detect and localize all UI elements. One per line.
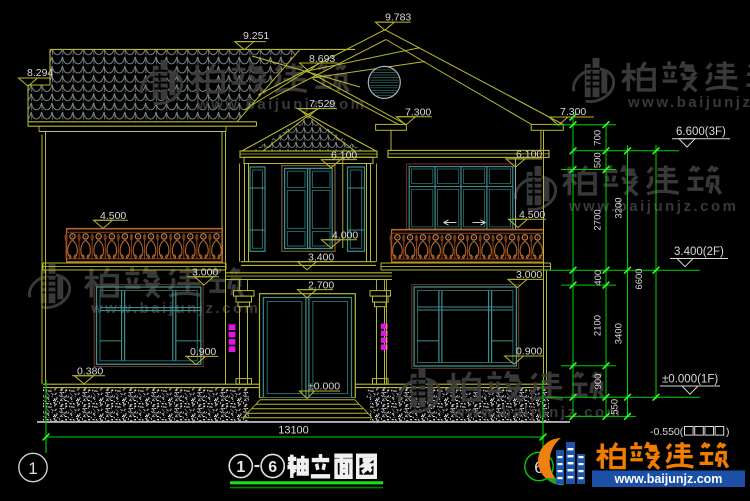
svg-text:400: 400 [593, 270, 604, 286]
svg-text:www.baijunjz.com: www.baijunjz.com [614, 472, 723, 486]
svg-text:550: 550 [610, 399, 621, 415]
svg-text:0.900: 0.900 [190, 346, 216, 358]
svg-text:-0.550(: -0.550( [650, 426, 684, 438]
svg-text:6.100: 6.100 [516, 149, 542, 161]
svg-text:1: 1 [236, 459, 245, 476]
svg-text:700: 700 [593, 130, 604, 146]
svg-text:3400: 3400 [614, 323, 625, 344]
svg-text:4.000: 4.000 [332, 229, 358, 241]
svg-text:6: 6 [268, 459, 277, 476]
svg-text:0.380: 0.380 [77, 365, 103, 377]
svg-text:13100: 13100 [278, 425, 309, 437]
svg-text:6.100: 6.100 [331, 149, 357, 161]
svg-text:2700: 2700 [593, 209, 604, 230]
svg-text:www.baijunjz.com: www.baijunjz.com [627, 94, 750, 111]
svg-text:www.baijunjz.com: www.baijunjz.com [452, 404, 622, 421]
svg-text:4.500: 4.500 [519, 209, 545, 221]
svg-text:9.783: 9.783 [385, 11, 411, 23]
svg-text:500: 500 [593, 152, 604, 168]
svg-text:7.300: 7.300 [560, 106, 586, 118]
svg-text:±0.000(1F): ±0.000(1F) [662, 374, 718, 386]
svg-text:3.400(2F): 3.400(2F) [674, 246, 724, 258]
svg-text:0.900: 0.900 [516, 346, 542, 358]
svg-text:www.baijunjz.com: www.baijunjz.com [196, 96, 366, 113]
svg-text:6.600(3F): 6.600(3F) [676, 126, 726, 138]
svg-text:3.400: 3.400 [308, 251, 334, 263]
svg-text:9.251: 9.251 [243, 30, 269, 42]
svg-text:2100: 2100 [593, 315, 604, 336]
svg-text:3.000: 3.000 [192, 266, 218, 278]
svg-text:3.000: 3.000 [516, 269, 542, 281]
svg-text:7.300: 7.300 [405, 107, 431, 119]
svg-text:): ) [726, 426, 730, 438]
svg-text:6600: 6600 [634, 268, 645, 289]
svg-text:7.529: 7.529 [309, 98, 335, 110]
svg-text:3200: 3200 [614, 197, 625, 218]
svg-text:8.693: 8.693 [309, 53, 335, 65]
svg-text:1: 1 [28, 459, 37, 478]
svg-text:4.500: 4.500 [100, 210, 126, 222]
svg-text:900: 900 [593, 374, 604, 390]
svg-text:2.700: 2.700 [308, 279, 334, 291]
svg-text:8.294: 8.294 [27, 67, 53, 79]
